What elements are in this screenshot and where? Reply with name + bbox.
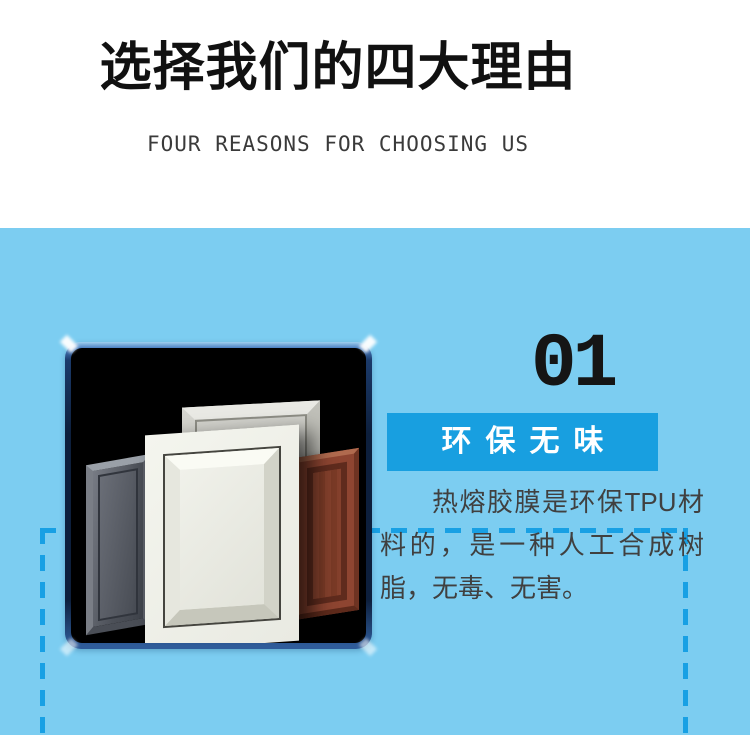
wood-brown-door-panel [313, 469, 341, 599]
dark-gray-door-image [86, 454, 150, 635]
white-door-bevel [165, 448, 279, 626]
wood-brown-door-image [295, 448, 359, 620]
white-door-frame-line [163, 446, 281, 628]
wood-brown-door-recess [307, 462, 347, 606]
reason-number: 01 [531, 327, 614, 403]
page-subtitle: FOUR REASONS FOR CHOOSING US [0, 131, 676, 157]
reason-badge: 环保无味 [387, 413, 658, 471]
page-title: 选择我们的四大理由 [0, 36, 676, 100]
title-bold-part: 四大理由 [365, 39, 577, 97]
dark-gray-door-panel [98, 468, 138, 621]
title-regular-part: 选择我们的 [99, 39, 364, 97]
reason-description: 热熔胶膜是环保TPU材料的，是一种人工合成树脂，无毒、无害。 [380, 481, 704, 610]
white-raised-panel-door-image [145, 425, 299, 643]
white-door-panel [180, 464, 264, 610]
promo-banner: 选择我们的四大理由 FOUR REASONS FOR CHOOSING US [0, 0, 750, 735]
product-photo [71, 348, 366, 643]
dashed-border-left [40, 528, 45, 735]
product-photo-frame [65, 342, 372, 649]
